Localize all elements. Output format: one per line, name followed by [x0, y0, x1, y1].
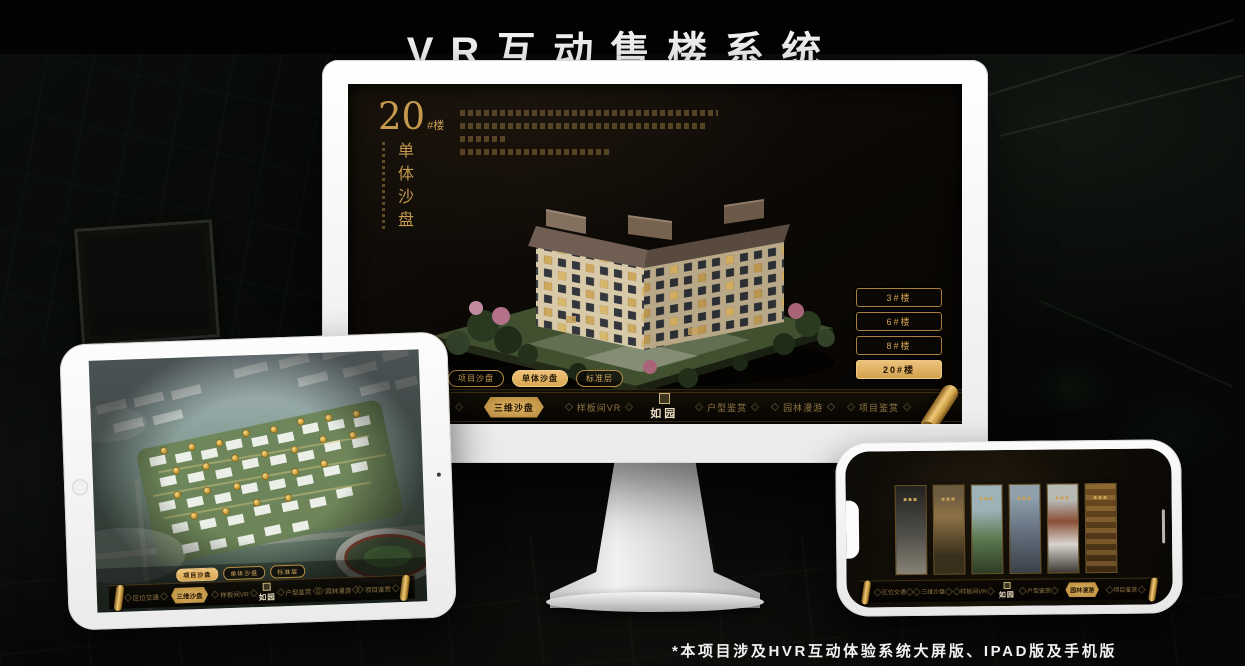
scene-card[interactable]	[1009, 484, 1042, 574]
building-sandtable-canvas[interactable]	[388, 158, 858, 394]
nav-item-floorplan[interactable]: 户型鉴赏	[1024, 584, 1054, 597]
description-line	[460, 136, 506, 142]
subtab-single-sandtable[interactable]: 单体沙盘	[512, 370, 568, 387]
brand-logo: 如园	[258, 582, 276, 603]
subtab-project-sandtable[interactable]: 项目沙盘	[448, 370, 504, 387]
phone-screen: 区位交通 三维沙盘 样板间VR 如园 户型鉴赏 园林漫游 项目鉴赏	[845, 448, 1173, 607]
building-button-20[interactable]: 20#楼	[856, 360, 942, 379]
phone-home-indicator[interactable]	[1162, 509, 1165, 543]
brand-logo: 如园	[999, 581, 1015, 599]
subtab-single-sandtable[interactable]: 单体沙盘	[223, 566, 265, 580]
block-number: 20	[378, 95, 425, 138]
scene-card-gallery	[895, 483, 1118, 575]
nav-item-model-room-vr[interactable]: 样板间VR	[216, 586, 253, 601]
tablet-screen: 项目沙盘 单体沙盘 标准层 区位交通 三维沙盘 样板间VR 如园 户型鉴赏 园林…	[89, 349, 428, 612]
scene-card[interactable]	[895, 485, 928, 575]
scene-card[interactable]	[933, 484, 966, 574]
nav-item-garden-tour[interactable]: 园林漫游	[1063, 582, 1101, 597]
block-title: 20#楼	[378, 98, 444, 135]
logo-text: 如园	[259, 591, 276, 603]
tablet-device: 项目沙盘 单体沙盘 标准层 区位交通 三维沙盘 样板间VR 如园 户型鉴赏 园林…	[59, 331, 457, 630]
scene-card[interactable]	[971, 484, 1004, 574]
scene-card[interactable]	[1047, 483, 1080, 573]
nav-item-model-room-vr[interactable]: 样板间VR	[570, 398, 629, 417]
nav-scroll-handle-left[interactable]	[861, 580, 871, 605]
description-line	[460, 149, 612, 155]
nav-item-location-traffic[interactable]: 区位交通	[129, 589, 163, 604]
description-text-decor	[460, 110, 718, 162]
scene-card[interactable]	[1085, 483, 1118, 573]
block-number-suffix: #楼	[427, 120, 444, 132]
logo-seal-icon	[263, 582, 271, 590]
monitor-base	[546, 592, 764, 612]
logo-seal-icon	[659, 393, 670, 404]
nav-item-project-gallery[interactable]: 项目鉴赏	[361, 581, 395, 596]
logo-seal-icon	[1003, 581, 1010, 588]
nav-item-location-traffic[interactable]: 区位交通	[879, 585, 909, 598]
phone-device: 区位交通 三维沙盘 样板间VR 如园 户型鉴赏 园林漫游 项目鉴赏	[835, 439, 1183, 617]
nav-item-floorplan[interactable]: 户型鉴赏	[281, 584, 315, 599]
poster-page: VR互动售楼系统 20#楼 单体沙盘	[0, 0, 1245, 666]
phone-notch	[846, 501, 860, 559]
nav-item-3d-sandtable[interactable]: 三维沙盘	[480, 397, 548, 418]
vertical-english-caption-decor	[382, 142, 385, 230]
building-button-6[interactable]: 6#楼	[856, 312, 942, 331]
nav-item-3d-sandtable[interactable]: 三维沙盘	[918, 585, 948, 598]
nav-item-garden-tour[interactable]: 园林漫游	[321, 582, 355, 597]
description-line	[460, 123, 706, 129]
nav-scroll-handle-right[interactable]	[399, 574, 410, 601]
subtab-project-sandtable[interactable]: 项目沙盘	[176, 567, 218, 581]
nav-item-project-gallery[interactable]: 项目鉴赏	[1110, 583, 1140, 596]
building-button-8[interactable]: 8#楼	[856, 336, 942, 355]
sandtable-subtabs: 项目沙盘 单体沙盘 标准层	[448, 370, 623, 387]
nav-item-project-gallery[interactable]: 项目鉴赏	[852, 398, 906, 417]
phone-bottom-nav: 区位交通 三维沙盘 样板间VR 如园 户型鉴赏 园林漫游 项目鉴赏	[860, 577, 1160, 602]
description-line	[460, 110, 718, 116]
logo-text: 如园	[999, 589, 1015, 599]
nav-item-floorplan[interactable]: 户型鉴赏	[700, 398, 754, 417]
wall-picture-frame	[74, 219, 220, 346]
nav-item-3d-sandtable[interactable]: 三维沙盘	[168, 586, 211, 603]
building-selector: 3#楼 6#楼 8#楼 20#楼	[856, 288, 942, 379]
footnote: *本项目涉及HVR互动体验系统大屏版、IPAD版及手机版	[672, 640, 1117, 661]
building-button-3[interactable]: 3#楼	[856, 288, 942, 307]
logo-text: 如园	[650, 405, 678, 421]
subtab-standard-floor[interactable]: 标准层	[576, 370, 623, 387]
nav-item-model-room-vr[interactable]: 样板间VR	[957, 584, 989, 597]
brand-logo: 如园	[650, 393, 678, 421]
subtab-standard-floor[interactable]: 标准层	[270, 564, 305, 578]
nav-item-garden-tour[interactable]: 园林漫游	[776, 398, 830, 417]
nav-scroll-handle-right[interactable]	[1148, 577, 1158, 602]
